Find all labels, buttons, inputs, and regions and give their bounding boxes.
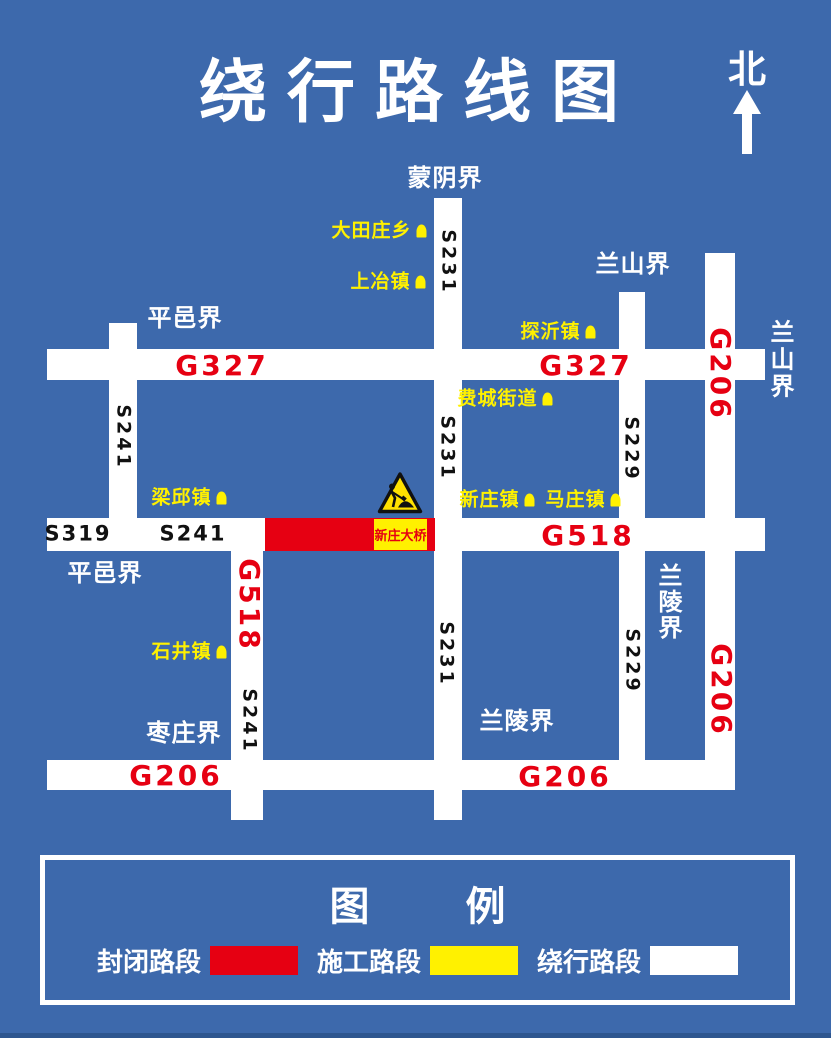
- road-label-s229-upper: S229: [622, 416, 641, 481]
- legend-item-closed: 封闭路段: [97, 942, 298, 979]
- legend-swatch-detour: [650, 946, 738, 975]
- town-marker-icon: [416, 276, 426, 289]
- route-g518-detour: G518: [235, 558, 263, 651]
- town-marker-icon: [217, 492, 227, 505]
- town-datianzhuangxiang: 大田庄乡: [331, 222, 426, 241]
- town-liangqiuzhen: 梁邱镇: [151, 489, 226, 508]
- road-label-s241-mid: S241: [160, 524, 227, 545]
- boundary-pingyi-top: 平邑界: [148, 306, 223, 330]
- route-g206-right-upper: G206: [706, 327, 734, 420]
- road-label-s241-detour: S241: [240, 688, 259, 753]
- legend-title-left: 图: [330, 874, 370, 932]
- legend: 图 例 封闭路段 施工路段 绕行路段: [40, 855, 795, 1005]
- town-shijingzhen: 石井镇: [151, 643, 226, 662]
- road-label-s241-left: S241: [114, 404, 133, 469]
- route-g518-right: G518: [541, 522, 634, 550]
- legend-item-label: 施工路段: [317, 942, 421, 979]
- boundary-mengyin: 蒙阴界: [408, 166, 483, 190]
- road-label-s231-middle: S231: [438, 415, 457, 480]
- town-label: 石井镇: [151, 643, 211, 662]
- bridge-name-sign: 新庄大桥: [374, 519, 427, 550]
- legend-item-label: 封闭路段: [97, 942, 201, 979]
- boundary-lanshan-right: 兰山界: [768, 320, 792, 401]
- legend-title-right: 例: [466, 874, 506, 932]
- north-label: 北: [728, 39, 766, 94]
- town-label: 探沂镇: [520, 323, 580, 342]
- town-shangyezhen: 上冶镇: [350, 273, 425, 292]
- route-g206-bottom-left: G206: [129, 762, 222, 790]
- legend-title: 图 例: [45, 874, 790, 932]
- boundary-zaozhuang: 枣庄界: [147, 721, 222, 745]
- road-label-s319: S319: [45, 524, 112, 545]
- boundary-lanshan-top: 兰山界: [596, 252, 671, 276]
- legend-items: 封闭路段 施工路段 绕行路段: [45, 942, 790, 979]
- town-marker-icon: [586, 326, 596, 339]
- town-mazhuangzhen: 马庄镇: [545, 491, 620, 510]
- north-arrow-icon: [732, 90, 762, 154]
- route-g206-right-lower: G206: [707, 643, 735, 736]
- town-label: 大田庄乡: [331, 222, 411, 241]
- road-label-s231-lower: S231: [437, 621, 456, 686]
- construction-warning-icon: [377, 471, 423, 516]
- town-label: 新庄镇: [459, 491, 519, 510]
- road-label-s231-upper: S231: [439, 229, 458, 294]
- road-label-s229-lower: S229: [623, 628, 642, 693]
- town-xinzhuangzhen: 新庄镇: [459, 491, 534, 510]
- town-feichengjiedao: 费城街道: [457, 390, 552, 409]
- town-marker-icon: [611, 494, 621, 507]
- route-g206-bottom-right: G206: [518, 763, 611, 791]
- route-g327-left: G327: [175, 352, 268, 380]
- town-marker-icon: [525, 494, 535, 507]
- boundary-lanling-bottom: 兰陵界: [480, 709, 555, 733]
- town-label: 马庄镇: [545, 491, 605, 510]
- town-marker-icon: [543, 393, 553, 406]
- town-marker-icon: [217, 646, 227, 659]
- page-title: 绕行路线图: [199, 37, 639, 136]
- legend-swatch-construction: [430, 946, 518, 975]
- boundary-lanling-right: 兰陵界: [656, 563, 680, 641]
- town-marker-icon: [417, 225, 427, 238]
- legend-swatch-closed: [210, 946, 298, 975]
- bottom-edge-strip: [0, 1033, 831, 1038]
- detour-map: 绕行路线图 北 新庄大桥 蒙阴界 平邑界 兰山界 平邑界 枣庄界 兰陵界 兰山界…: [0, 0, 831, 1038]
- town-label: 费城街道: [457, 390, 537, 409]
- legend-item-label: 绕行路段: [537, 942, 641, 979]
- boundary-pingyi-left: 平邑界: [68, 561, 143, 585]
- town-label: 上冶镇: [350, 273, 410, 292]
- road-g327-horizontal: [47, 349, 765, 380]
- town-tanyizhen: 探沂镇: [520, 323, 595, 342]
- legend-item-detour: 绕行路段: [537, 942, 738, 979]
- town-label: 梁邱镇: [151, 489, 211, 508]
- legend-item-construction: 施工路段: [317, 942, 518, 979]
- route-g327-right: G327: [539, 352, 632, 380]
